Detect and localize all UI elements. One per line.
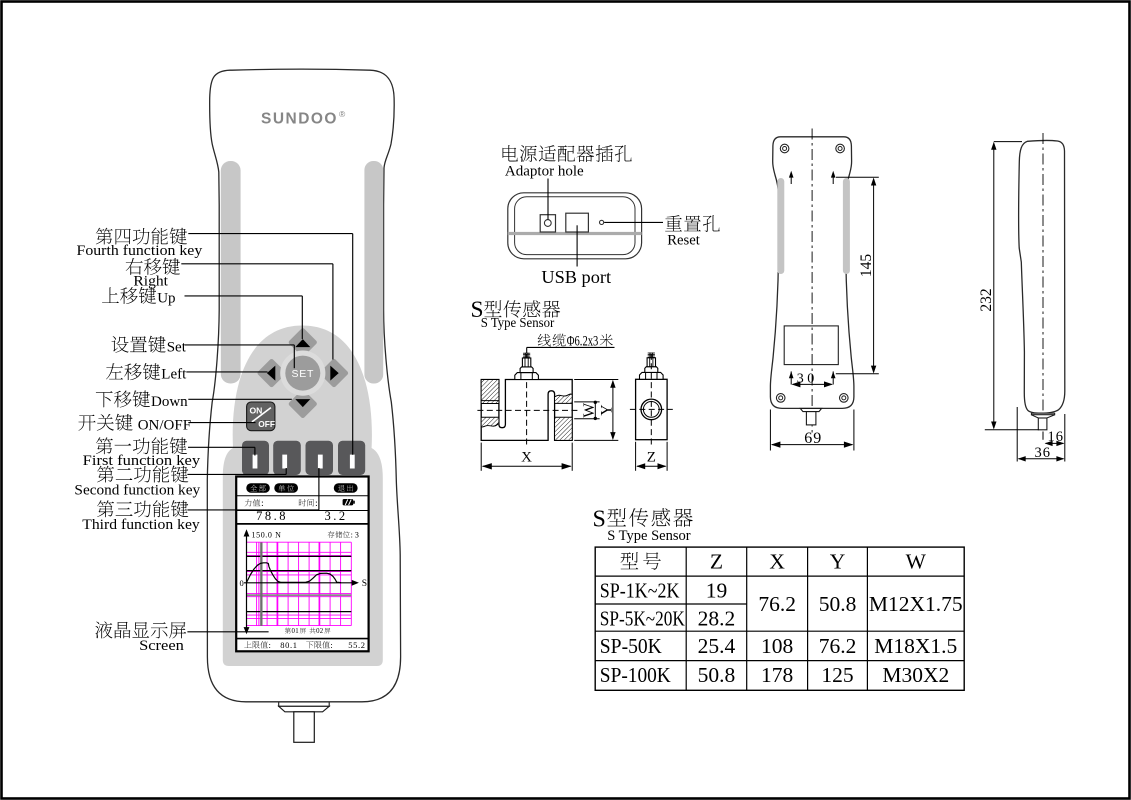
- svg-text:80.1: 80.1: [280, 640, 297, 650]
- svg-text:0: 0: [240, 578, 244, 588]
- svg-text:S: S: [362, 579, 367, 589]
- svg-text:W: W: [906, 549, 927, 573]
- svg-text:01: 01: [292, 628, 299, 635]
- svg-text:50.8: 50.8: [819, 592, 857, 616]
- svg-text:®: ®: [339, 109, 346, 119]
- svg-text:SUNDOO: SUNDOO: [261, 110, 338, 127]
- svg-text:USB port: USB port: [541, 267, 611, 287]
- svg-text:Z: Z: [647, 449, 656, 465]
- svg-text:125: 125: [821, 663, 853, 687]
- svg-text:150.0 N: 150.0 N: [252, 530, 282, 539]
- svg-text:ON: ON: [250, 406, 263, 416]
- svg-text:55.2: 55.2: [348, 640, 365, 650]
- svg-text:76.2: 76.2: [819, 634, 857, 658]
- svg-text:Right: Right: [133, 273, 168, 289]
- svg-text:M18X1.5: M18X1.5: [874, 634, 957, 658]
- svg-text:78.8: 78.8: [256, 509, 288, 523]
- svg-text:M30X2: M30X2: [882, 663, 949, 687]
- svg-text:76.2: 76.2: [758, 592, 796, 616]
- svg-text:SP-100K: SP-100K: [600, 663, 671, 687]
- svg-text:02: 02: [316, 628, 324, 635]
- svg-text:Second function key: Second function key: [74, 483, 200, 499]
- svg-text:Z: Z: [710, 549, 723, 573]
- svg-text:Third function key: Third function key: [82, 517, 200, 533]
- svg-text:W: W: [581, 403, 598, 418]
- svg-text:X: X: [521, 449, 532, 465]
- svg-text::: :: [330, 640, 332, 650]
- svg-text:SP-5K~20K: SP-5K~20K: [600, 607, 685, 631]
- svg-text:S Type Sensor: S Type Sensor: [481, 316, 555, 331]
- svg-text::: :: [269, 640, 271, 650]
- svg-text:Left: Left: [161, 367, 187, 383]
- svg-text:Fourth function key: Fourth function key: [77, 243, 203, 259]
- svg-text:69: 69: [804, 430, 822, 447]
- svg-text:: 3: : 3: [351, 530, 359, 539]
- svg-text:28.2: 28.2: [698, 607, 736, 631]
- svg-text::: :: [261, 498, 264, 508]
- svg-text:Screen: Screen: [139, 638, 184, 654]
- svg-text:X: X: [769, 549, 785, 573]
- svg-text:SP-50K: SP-50K: [600, 634, 662, 658]
- svg-text:S Type Sensor: S Type Sensor: [607, 528, 690, 544]
- svg-text:Down: Down: [151, 394, 188, 410]
- svg-text:M12X1.75: M12X1.75: [869, 592, 963, 616]
- svg-text:25.4: 25.4: [698, 634, 736, 658]
- svg-text:Y: Y: [599, 404, 616, 415]
- svg-text:ON/OFF: ON/OFF: [138, 417, 191, 433]
- svg-text:SP-1K~2K: SP-1K~2K: [600, 579, 680, 603]
- svg-text::: :: [315, 498, 318, 508]
- svg-text:S: S: [593, 507, 606, 533]
- svg-text:108: 108: [761, 634, 793, 658]
- svg-text:OFF: OFF: [258, 419, 275, 429]
- svg-text:178: 178: [761, 663, 793, 687]
- svg-text:Set: Set: [167, 339, 187, 355]
- svg-text:Y: Y: [830, 549, 846, 573]
- svg-text:145: 145: [858, 254, 875, 278]
- svg-text:232: 232: [978, 288, 995, 311]
- svg-text:3.2: 3.2: [324, 509, 347, 523]
- svg-text:Adaptor hole: Adaptor hole: [505, 164, 584, 180]
- svg-text:SET: SET: [292, 368, 315, 380]
- svg-text:Up: Up: [157, 291, 175, 307]
- svg-text:19: 19: [706, 579, 728, 603]
- svg-text:3 0: 3 0: [797, 371, 815, 386]
- svg-text:Reset: Reset: [667, 233, 700, 249]
- svg-text:50.8: 50.8: [698, 663, 736, 687]
